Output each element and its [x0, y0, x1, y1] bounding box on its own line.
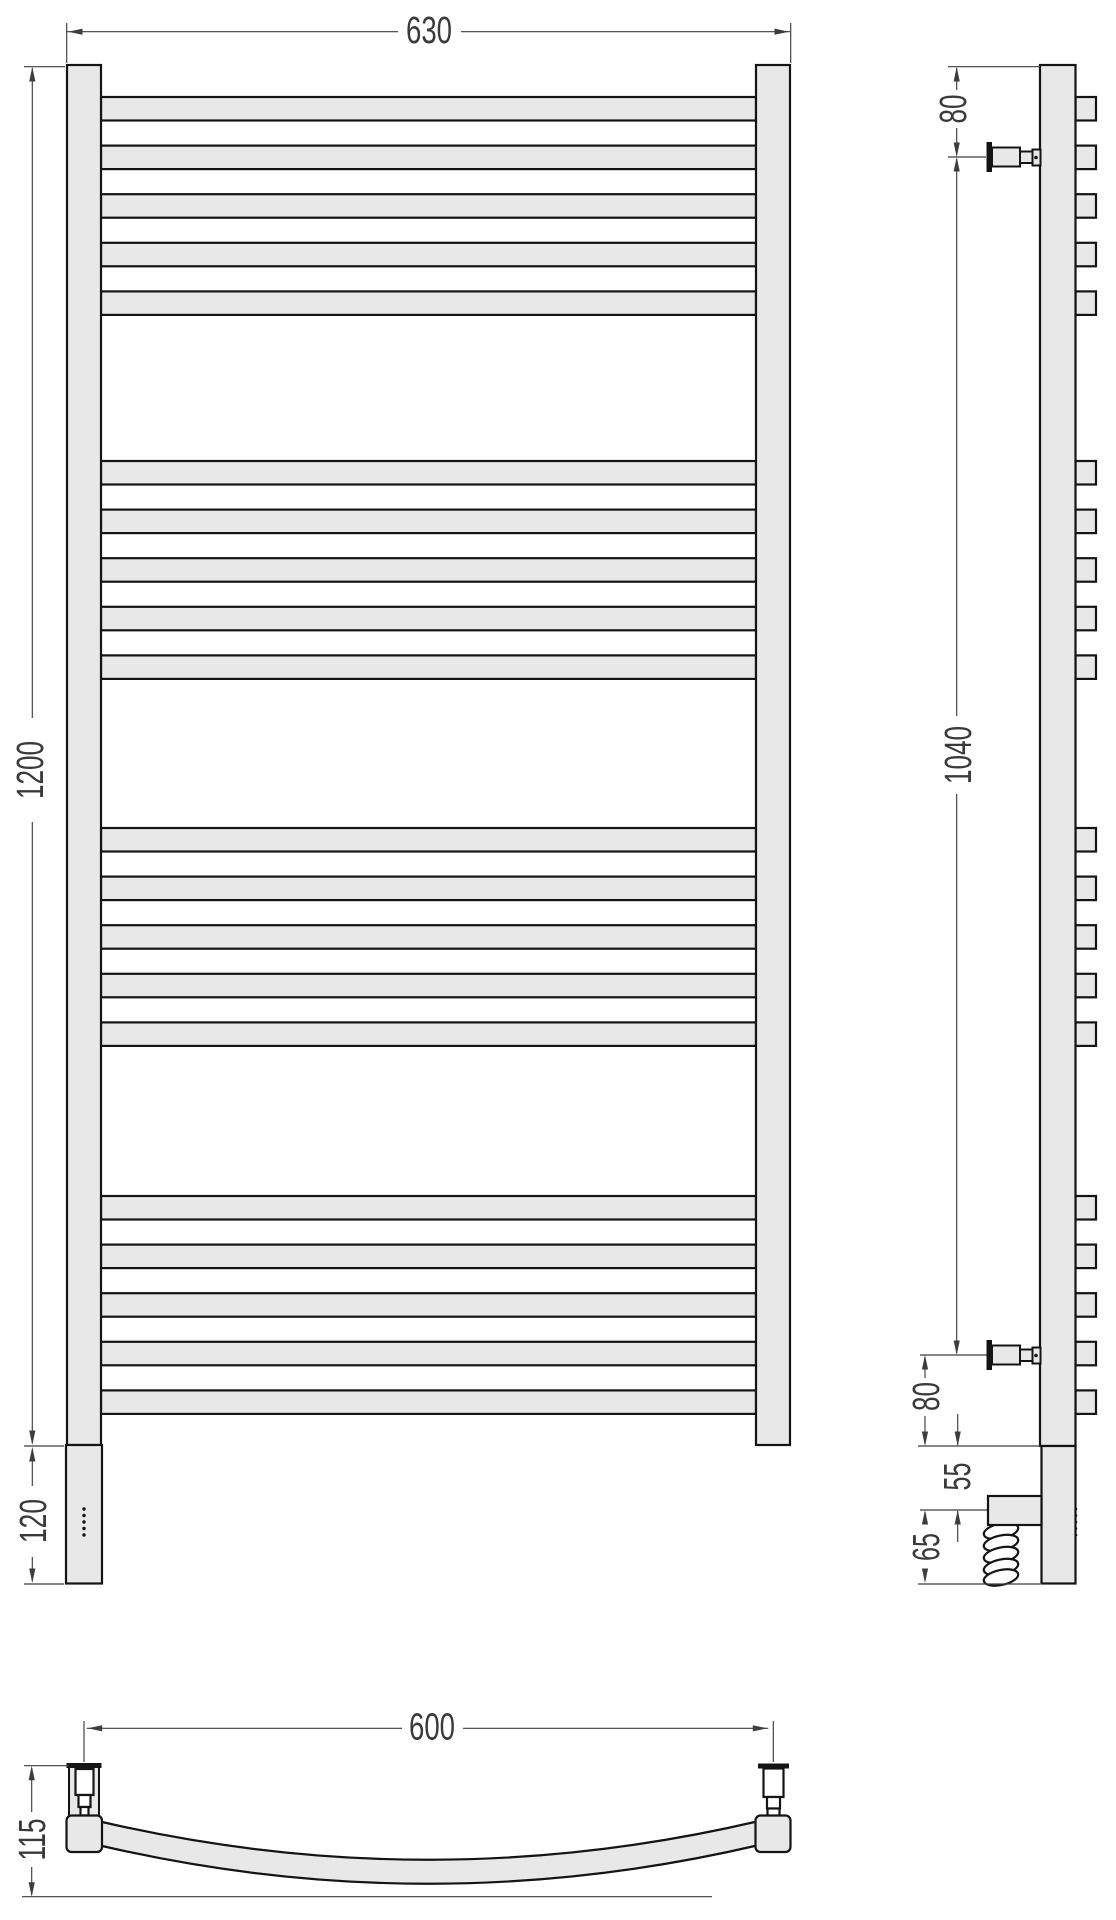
side-dot — [1075, 1508, 1078, 1511]
plan-right-bracket — [756, 1764, 791, 1853]
dimension-arrowhead — [954, 157, 960, 172]
side-bar-end — [1076, 243, 1097, 266]
front-view — [66, 65, 790, 1584]
front-bar — [101, 194, 756, 218]
valve-body — [764, 1769, 784, 1798]
front-bar — [101, 925, 756, 949]
dimension-arrowhead — [29, 1766, 35, 1781]
side-bar-end — [1076, 558, 1097, 582]
dimension-arrowhead — [88, 1725, 103, 1731]
valve-body — [992, 148, 1020, 167]
side-valve-top — [987, 142, 1041, 172]
valve-flange — [67, 1763, 102, 1768]
dim-label-element-bottom-gap: 65 — [906, 1533, 948, 1561]
side-bar-end — [1076, 1196, 1097, 1220]
dimension-arrowhead — [29, 1431, 35, 1446]
side-bar-end — [1076, 194, 1097, 218]
front-bar — [101, 291, 756, 315]
dimension-arrowhead — [954, 143, 960, 158]
side-bar-end — [1076, 1390, 1097, 1414]
dim-label-plan-depth: 115 — [12, 1819, 54, 1861]
dim-label-side-axis-span: 1040 — [938, 726, 980, 784]
dimension-arrowhead — [954, 67, 960, 82]
dimension-arrowhead — [29, 1569, 35, 1584]
dim-label-front-width: 630 — [406, 10, 452, 52]
front-bar — [101, 607, 756, 631]
front-dot — [82, 1533, 85, 1536]
side-view — [982, 65, 1096, 1588]
front-bar — [101, 828, 756, 852]
front-bar — [101, 1022, 756, 1046]
front-dot — [82, 1514, 85, 1517]
valve-neck — [1020, 1350, 1033, 1362]
side-bar-end — [1076, 974, 1097, 998]
dim-label-plan-span: 600 — [409, 1707, 455, 1749]
front-dot — [82, 1507, 85, 1510]
front-bar — [101, 1293, 756, 1317]
heating-element-box — [988, 1496, 1042, 1525]
dimension-arrowhead — [922, 1569, 928, 1584]
front-bar — [101, 558, 756, 582]
valve-pin — [1034, 1354, 1038, 1358]
dimension-arrowhead — [954, 1341, 960, 1356]
valve-neck — [1020, 152, 1033, 164]
side-dot — [1075, 1514, 1078, 1517]
front-bar — [101, 461, 756, 485]
side-post — [1040, 65, 1076, 1446]
dimension-arrowhead — [753, 1725, 768, 1731]
side-bar-end — [1076, 97, 1097, 121]
valve-pin — [1034, 156, 1038, 160]
front-dot — [82, 1527, 85, 1530]
side-bar-ends-group — [1076, 97, 1097, 1414]
towel-rail-technical-drawing: 630 1200 120 80 1040 80 55 65 600 115 — [0, 0, 1116, 1920]
dimension-arrowhead — [955, 1432, 961, 1447]
valve-body — [992, 1346, 1020, 1365]
side-bar-end — [1076, 510, 1097, 533]
front-dot — [82, 1520, 85, 1523]
dimension-arrowhead — [29, 1882, 35, 1897]
side-bar-end — [1076, 146, 1097, 170]
dim-label-side-bottom-offset: 80 — [906, 1382, 948, 1411]
side-bar-end — [1076, 925, 1097, 949]
side-bar-end — [1076, 1293, 1097, 1317]
front-right-post — [756, 65, 790, 1445]
curved-tube — [100, 1822, 757, 1884]
side-collector-box — [1042, 1446, 1076, 1584]
front-bar — [101, 510, 756, 533]
plan-view — [22, 1763, 791, 1897]
valve-neck — [79, 1795, 91, 1807]
side-dot — [1075, 1527, 1078, 1530]
side-bar-end — [1076, 1022, 1097, 1046]
side-valve-bottom — [987, 1340, 1041, 1370]
corner-box — [756, 1816, 791, 1853]
front-left-post — [67, 65, 101, 1445]
dimension-arrowhead — [922, 1510, 928, 1525]
side-bar-end — [1076, 291, 1097, 315]
dimension-arrowhead — [775, 29, 790, 35]
dimension-arrowhead — [955, 1510, 961, 1525]
side-bar-end — [1076, 828, 1097, 852]
dimension-arrowhead — [922, 1355, 928, 1370]
dimension-arrowhead — [29, 1447, 35, 1462]
front-bar — [101, 1245, 756, 1269]
dim-label-collector-height: 120 — [13, 1499, 55, 1543]
front-bar — [101, 877, 756, 901]
side-bar-end — [1076, 877, 1097, 901]
dim-label-element-top-gap: 55 — [937, 1463, 979, 1491]
side-bar-end — [1076, 461, 1097, 485]
dimension-arrowhead — [68, 29, 83, 35]
front-bar — [101, 1196, 756, 1220]
front-bar — [101, 974, 756, 998]
front-bar — [101, 146, 756, 170]
plan-left-bracket — [67, 1763, 103, 1852]
front-bar — [101, 243, 756, 266]
dim-label-side-top-offset: 80 — [933, 95, 975, 124]
front-bar — [101, 655, 756, 679]
side-bar-end — [1076, 1245, 1097, 1269]
valve-neck — [767, 1797, 780, 1809]
side-bar-end — [1076, 655, 1097, 679]
front-bars-group — [101, 97, 756, 1414]
valve-tip — [81, 1807, 89, 1816]
dim-label-front-height: 1200 — [10, 741, 52, 799]
power-cable-coil — [982, 1519, 1019, 1588]
side-bar-end — [1076, 1342, 1097, 1366]
dimension-arrowhead — [922, 1432, 928, 1447]
front-bar — [101, 1342, 756, 1366]
dimension-arrowhead — [29, 67, 35, 82]
front-bar — [101, 1390, 756, 1414]
side-dot — [1075, 1534, 1078, 1537]
side-bar-end — [1076, 607, 1097, 631]
side-dot — [1075, 1521, 1078, 1524]
corner-box — [67, 1816, 103, 1853]
valve-body — [76, 1769, 94, 1795]
front-bar — [101, 97, 756, 121]
drawing-canvas: 630 1200 120 80 1040 80 55 65 600 115 — [0, 0, 1116, 1920]
